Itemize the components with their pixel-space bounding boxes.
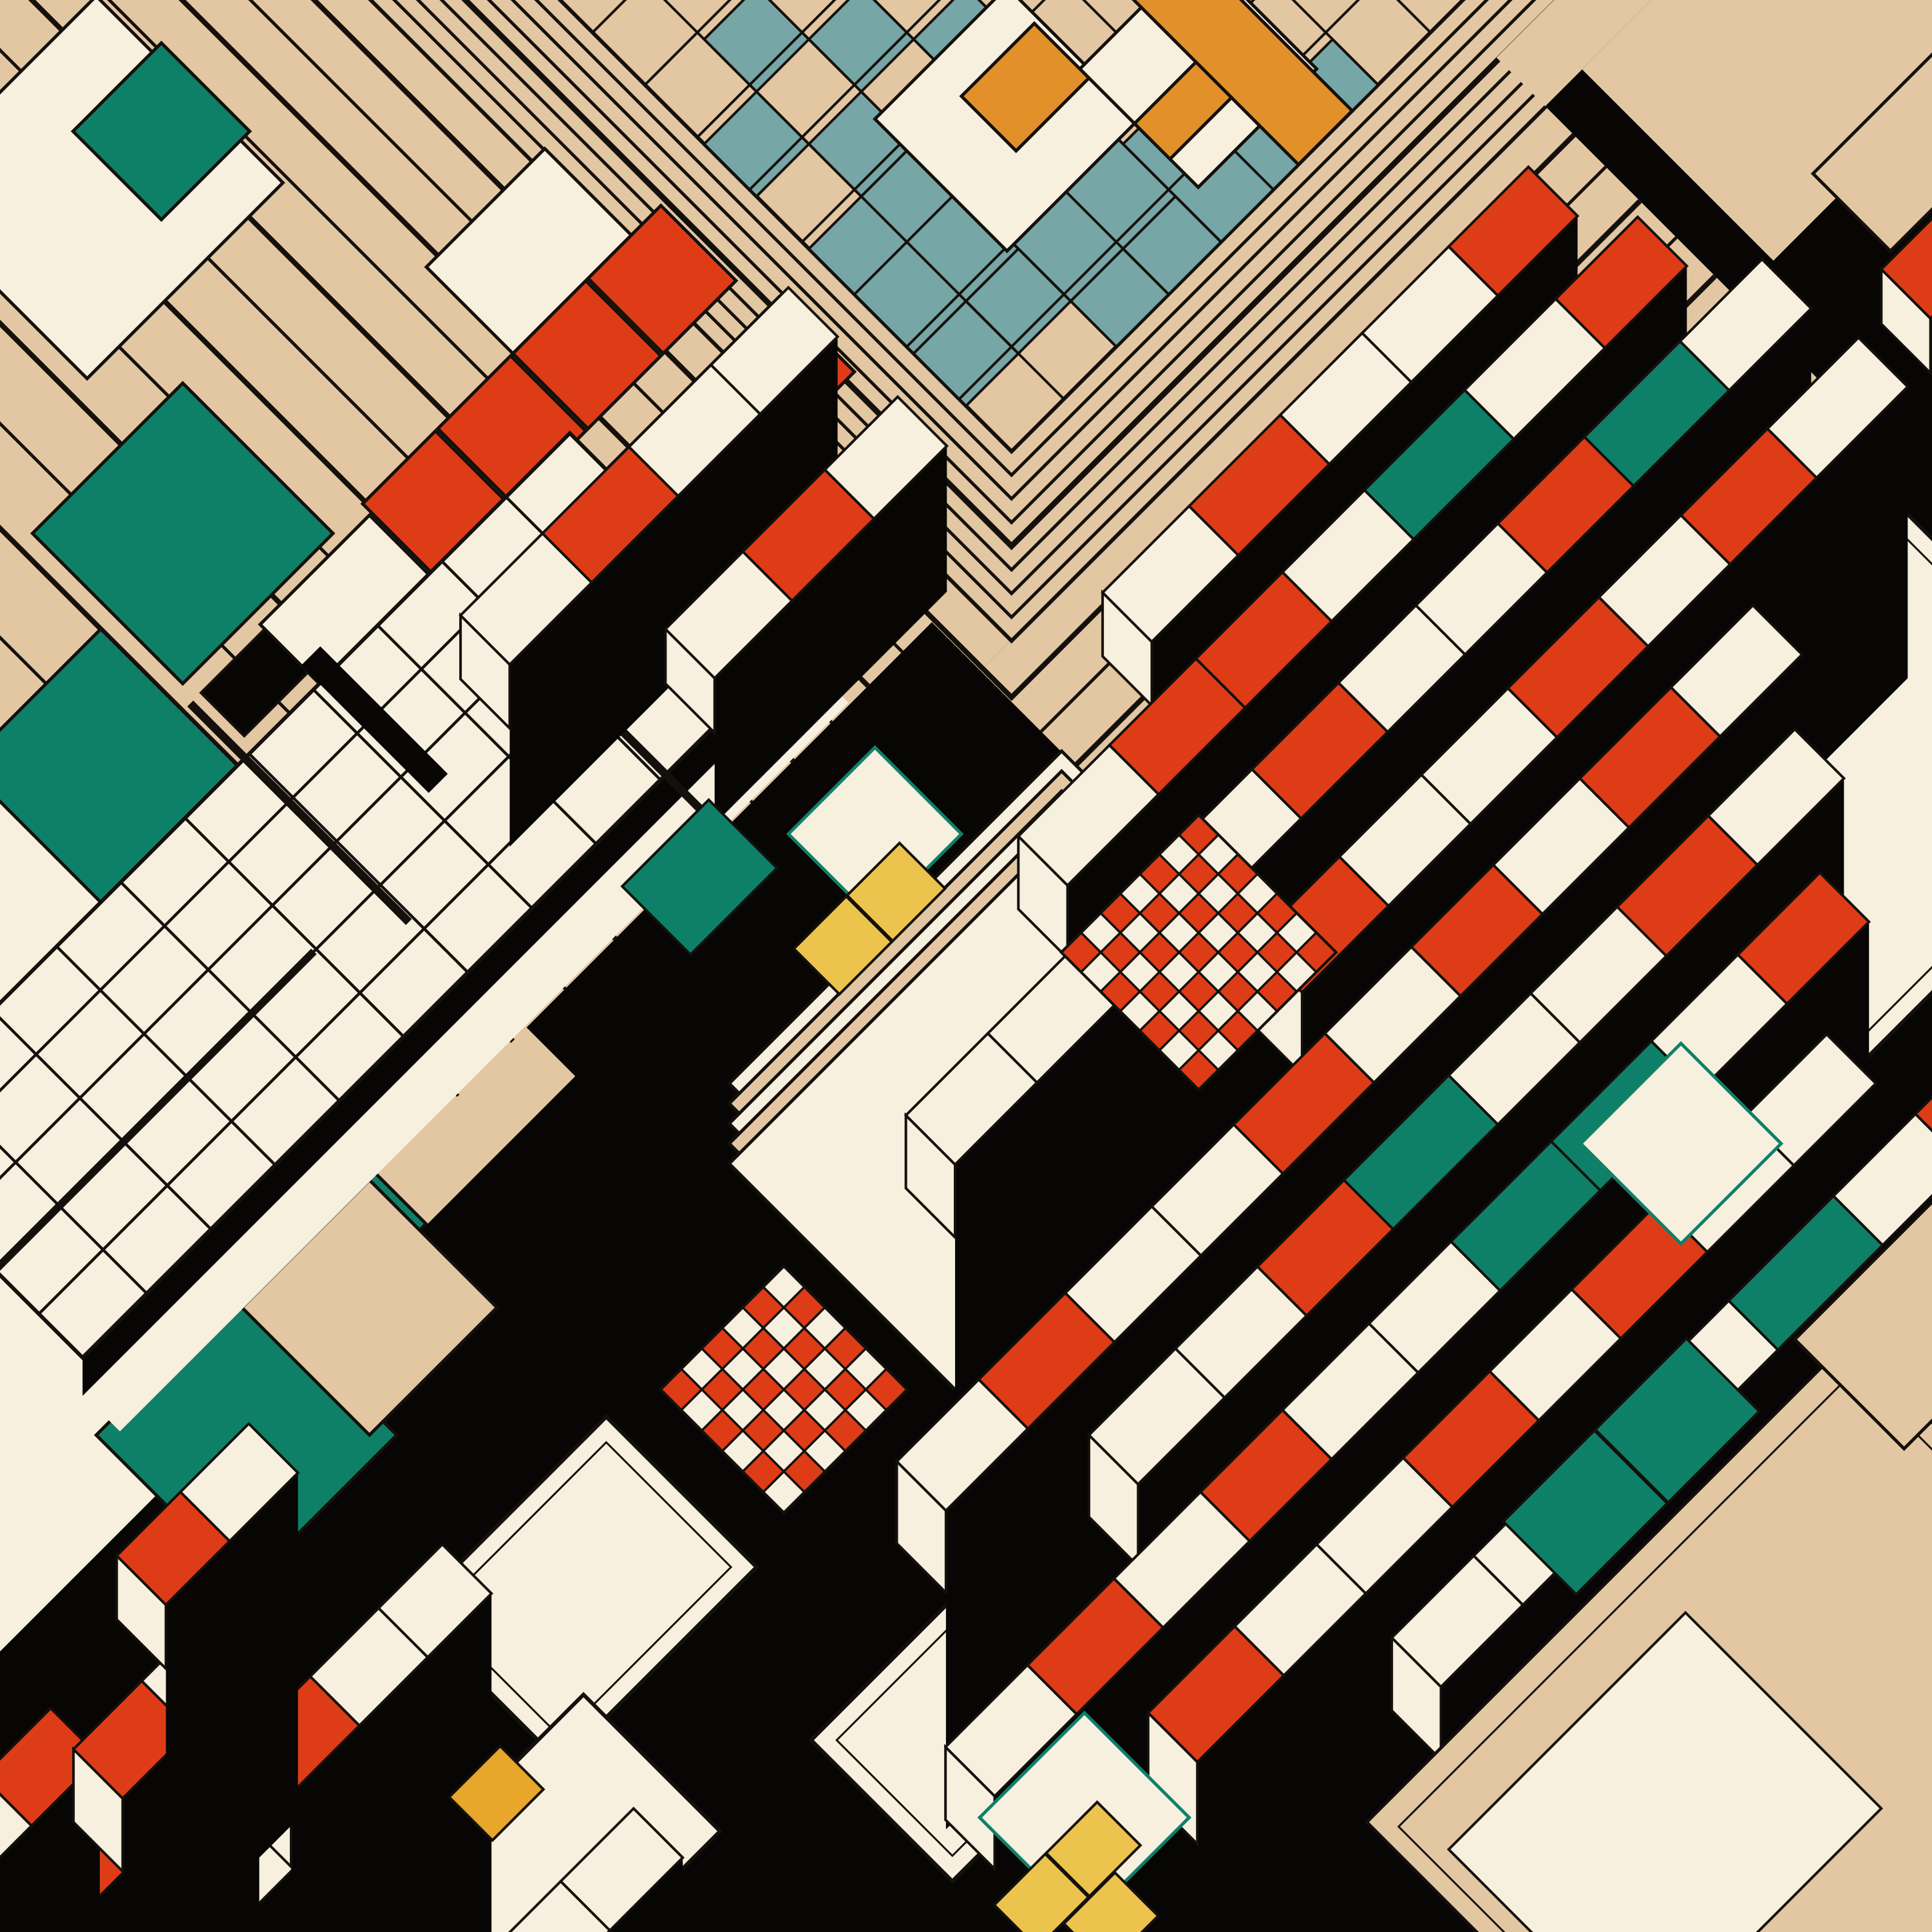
artwork-canvas: [0, 0, 1932, 1932]
generative-artwork: [0, 0, 1932, 1932]
